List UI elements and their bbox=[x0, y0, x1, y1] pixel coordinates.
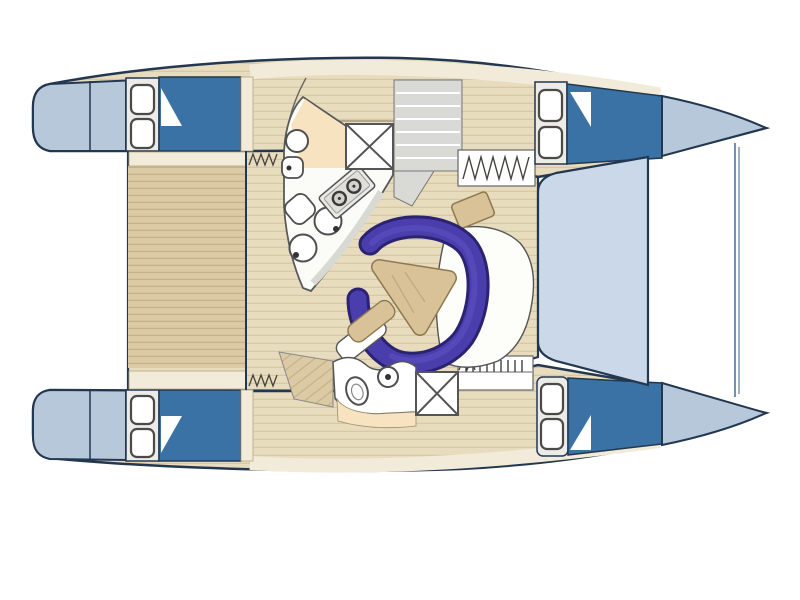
cockpit-cream-strip-bottom bbox=[129, 371, 246, 389]
washbasin bbox=[282, 157, 303, 178]
stern-platform-starboard bbox=[33, 390, 126, 460]
deck-hatch bbox=[131, 396, 154, 424]
floorplan-canvas bbox=[0, 0, 800, 600]
galley-sink-tap bbox=[333, 226, 339, 232]
bow-starboard bbox=[662, 383, 766, 445]
cream-trim-strip bbox=[241, 390, 253, 461]
hatch-berth bbox=[416, 372, 458, 415]
foredeck bbox=[538, 157, 648, 385]
deck-hatch bbox=[541, 419, 563, 449]
stern-platform-port bbox=[33, 81, 126, 152]
deck-hatch bbox=[539, 127, 562, 158]
bow-port bbox=[662, 96, 766, 156]
washbasin-tap bbox=[287, 166, 292, 171]
washbasin-aft-tap bbox=[385, 374, 391, 380]
hatch-table bbox=[346, 124, 393, 169]
cockpit-cream-strip-top bbox=[129, 152, 246, 166]
cockpit-deck bbox=[128, 166, 246, 368]
deck-hatch bbox=[131, 429, 154, 457]
deck-hatch bbox=[131, 85, 154, 114]
galley-sink-2 bbox=[290, 235, 317, 262]
deck-hatch bbox=[131, 119, 154, 148]
catamaran-floorplan-image bbox=[0, 0, 800, 600]
cream-trim-strip bbox=[241, 77, 253, 151]
toilet bbox=[286, 130, 308, 152]
galley-sink-2-tap bbox=[293, 252, 299, 258]
deck-hatch bbox=[541, 384, 563, 414]
deck-hatch bbox=[539, 90, 562, 121]
